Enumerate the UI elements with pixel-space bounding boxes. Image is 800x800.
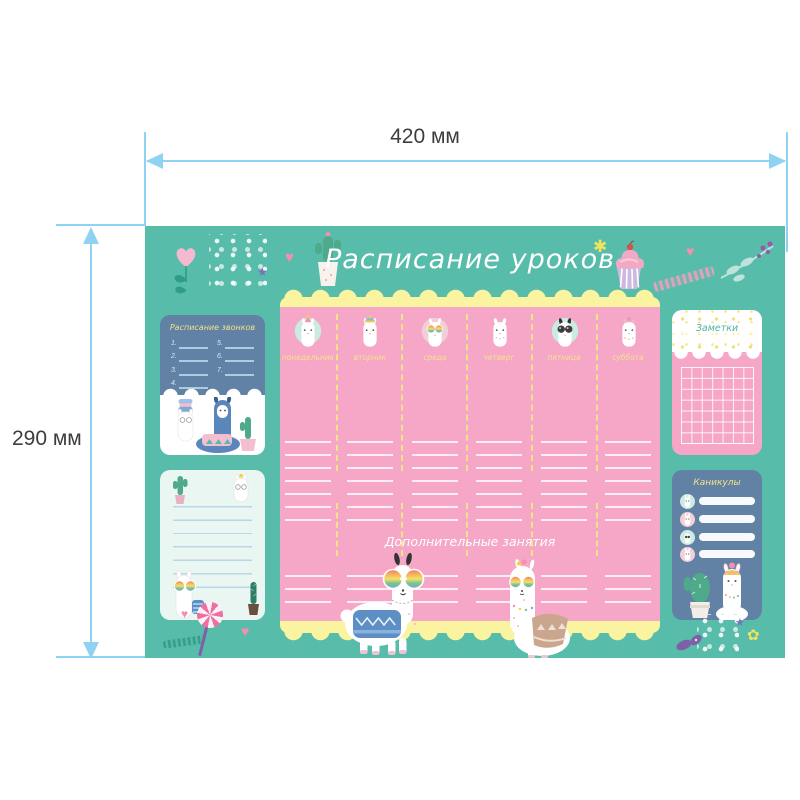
lesson-lines: [476, 430, 522, 523]
day-label: суббота: [596, 353, 660, 362]
day-label: вторник: [338, 353, 402, 362]
holidays-card: Каникулы: [672, 470, 762, 620]
flower-icon: ✿: [747, 628, 760, 643]
star-icon: ★: [257, 266, 268, 278]
confetti-cluster-bottom-icon: [697, 614, 739, 654]
extension-line-right: [786, 132, 788, 252]
llama-cactus-illustration: [680, 562, 754, 620]
notes-lined-card: [160, 470, 265, 620]
height-dimension-label: 290 мм: [12, 427, 82, 451]
extra-lines: [285, 564, 331, 605]
lollipop-icon: [197, 602, 223, 628]
holiday-line: [699, 515, 755, 523]
washi-scribble-icon: [653, 266, 715, 293]
llama-rainbow-glasses-icon: [418, 315, 452, 349]
column-separator: [401, 314, 403, 471]
holiday-line: [699, 497, 755, 505]
column-separator: [596, 314, 598, 471]
holiday-line: [699, 550, 755, 558]
leaf-branch-icon: [717, 238, 777, 282]
bell-number: 7.: [217, 367, 223, 374]
column-separator: [336, 314, 338, 471]
bell-line: [179, 360, 208, 362]
day-label: пятница: [532, 353, 596, 362]
llama-beanie-icon: [353, 315, 387, 349]
notes-grid: [681, 367, 754, 444]
column-separator: [531, 314, 533, 471]
day-label: четверг: [467, 353, 531, 362]
bell-number: 3.: [171, 367, 177, 374]
llama-badge-icon: [680, 547, 695, 562]
extension-line-left: [144, 132, 146, 224]
cactus-icon: [172, 476, 188, 504]
bell-schedule-card: Расписание звонков 1. 2. 3. 4. 5. 6. 7.: [160, 315, 265, 455]
column-separator: [466, 314, 468, 471]
bell-line: [179, 374, 208, 376]
page-title: Расписание уроков: [280, 244, 660, 275]
llama-sunglasses-icon: [548, 315, 582, 349]
star-icon: ★: [735, 618, 745, 629]
bell-line: [225, 374, 254, 376]
notes-card-title: Заметки: [672, 323, 762, 334]
scribble-icon: [163, 635, 206, 649]
extra-classes-title: Дополнительные занятия: [280, 534, 660, 549]
extension-line-bottom: [56, 656, 146, 658]
bell-schedule-title: Расписание звонков: [160, 323, 265, 332]
potted-cactus-icon: [246, 582, 261, 616]
extension-line-top: [56, 224, 146, 226]
bell-line: [225, 347, 254, 349]
day-label: среда: [403, 353, 467, 362]
lesson-lines: [412, 430, 458, 523]
heart-icon: ♥: [686, 244, 694, 258]
notes-card-scallop: [672, 352, 762, 361]
tulip-flower-icon: [171, 246, 201, 298]
llama-pink-ears-icon: [612, 315, 646, 349]
llamas-cactus-illustration: [166, 397, 258, 453]
llama-party-hat-icon: [291, 315, 325, 349]
llama-tall-illustration: [494, 558, 582, 658]
width-dimension-label: 420 мм: [250, 125, 600, 149]
notes-grid-card: Заметки: [672, 310, 762, 455]
llama-large-sunglasses-illustration: [335, 552, 449, 658]
lesson-lines: [541, 430, 587, 523]
llama-head-icon: [230, 474, 252, 502]
bell-number: 2.: [171, 353, 177, 360]
height-dimension-line: [90, 230, 92, 656]
llama-badge-icon: [680, 512, 695, 527]
llama-badge-icon: [680, 530, 695, 545]
arrow-left-icon: [146, 153, 163, 169]
bell-line: [225, 360, 254, 362]
bell-card-scallop: [160, 386, 265, 396]
heart-icon: ♥: [181, 608, 188, 620]
desk-pad: ★ ♥ ✱ ♥ Расписание уроков: [145, 226, 785, 658]
bell-number: 5.: [217, 340, 223, 347]
bell-number: 1.: [171, 340, 177, 347]
bell-line: [179, 347, 208, 349]
arrow-up-icon: [83, 227, 99, 244]
lesson-lines: [347, 430, 393, 523]
extra-lines: [605, 564, 651, 605]
llama-badge-icon: [680, 494, 695, 509]
holidays-card-title: Каникулы: [672, 478, 762, 488]
width-dimension-line: [147, 160, 785, 162]
lesson-lines: [605, 430, 651, 523]
heart-icon: ♥: [241, 624, 249, 638]
bell-number: 6.: [217, 353, 223, 360]
holiday-line: [699, 533, 755, 541]
arrow-right-icon: [769, 153, 786, 169]
day-label: понедельник: [276, 353, 340, 362]
lesson-lines: [285, 430, 331, 523]
llama-plain-icon: [483, 315, 517, 349]
